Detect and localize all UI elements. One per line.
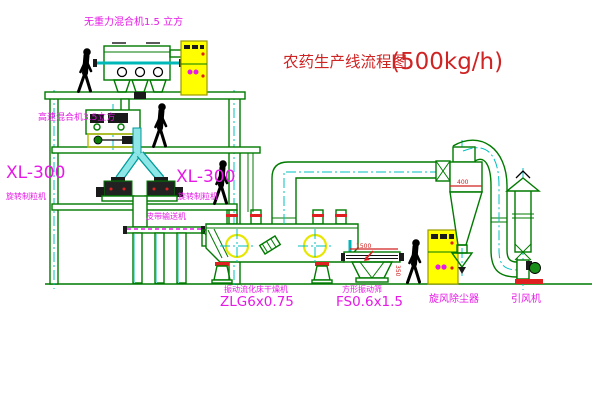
person-figure-ground (408, 239, 421, 282)
person-figure-mixer-floor (154, 103, 167, 146)
fan-base (515, 279, 543, 284)
indicator-light-icon (435, 264, 440, 269)
label-gravity-mixer: 无重力混合机1.5 立方 (84, 15, 183, 28)
diagram-title-capacity: (500kg/h) (391, 49, 503, 75)
label-screen-model: FS0.6x1.5 (336, 294, 403, 310)
label-high-speed-mixer: 高速混合机3.5立方 (38, 111, 115, 123)
exhaust-duct (272, 162, 442, 224)
dim-cyclone: 400 (457, 179, 469, 186)
indicator-light-icon (201, 74, 204, 77)
motor-icon (94, 136, 102, 144)
vent-stubs (226, 210, 347, 224)
diagram-title: 农药生产线流程图 (283, 53, 407, 71)
indicator-light-icon (201, 52, 204, 55)
indicator-light-icon (194, 70, 199, 75)
label-granulator-right-name: 旋转制粒机 (178, 191, 218, 201)
dim-screen-height: 350 (394, 265, 401, 277)
gravity-free-mixer (93, 43, 186, 113)
label-dryer-model: ZLG6x0.75 (220, 294, 294, 310)
induced-draft-fan (515, 258, 543, 284)
indicator-light-icon (450, 241, 453, 244)
label-granulator-right-model: XL-300 (176, 167, 235, 187)
label-granulator-left-name: 旋转制粒机 (6, 191, 46, 201)
indicator-light-icon (188, 70, 193, 75)
label-dryer-name: 振动流化床干燥机 (224, 284, 288, 294)
discharge-chute (133, 196, 147, 227)
process-flow-diagram: 农药生产线流程图 (500kg/h) 无重力混合机1.5 立方 高速混合机3.5… (0, 0, 600, 403)
label-fan: 引风机 (511, 292, 541, 305)
indicator-light-icon (450, 266, 453, 269)
control-cabinet-top (181, 41, 207, 95)
dim-screen-length: 1500 (356, 243, 371, 250)
label-cyclone: 旋风除尘器 (429, 292, 479, 305)
cad-canvas: 农药生产线流程图 (500kg/h) 无重力混合机1.5 立方 高速混合机3.5… (0, 0, 600, 403)
conveyor-legs (133, 233, 186, 283)
person-figure-top-floor (79, 48, 92, 91)
fan-motor-icon (530, 263, 541, 274)
label-granulator-left-model: XL-300 (6, 163, 65, 183)
label-belt-conveyor: 皮带输送机 (146, 211, 186, 221)
indicator-light-icon (441, 264, 446, 269)
floor-slab-mid1 (52, 147, 260, 153)
control-cabinet-bottom (428, 230, 458, 284)
high-speed-mixer (86, 104, 140, 150)
granulator-left (96, 177, 134, 201)
stack-cap (507, 178, 539, 191)
label-screen-name: 方形振动筛 (342, 284, 382, 294)
